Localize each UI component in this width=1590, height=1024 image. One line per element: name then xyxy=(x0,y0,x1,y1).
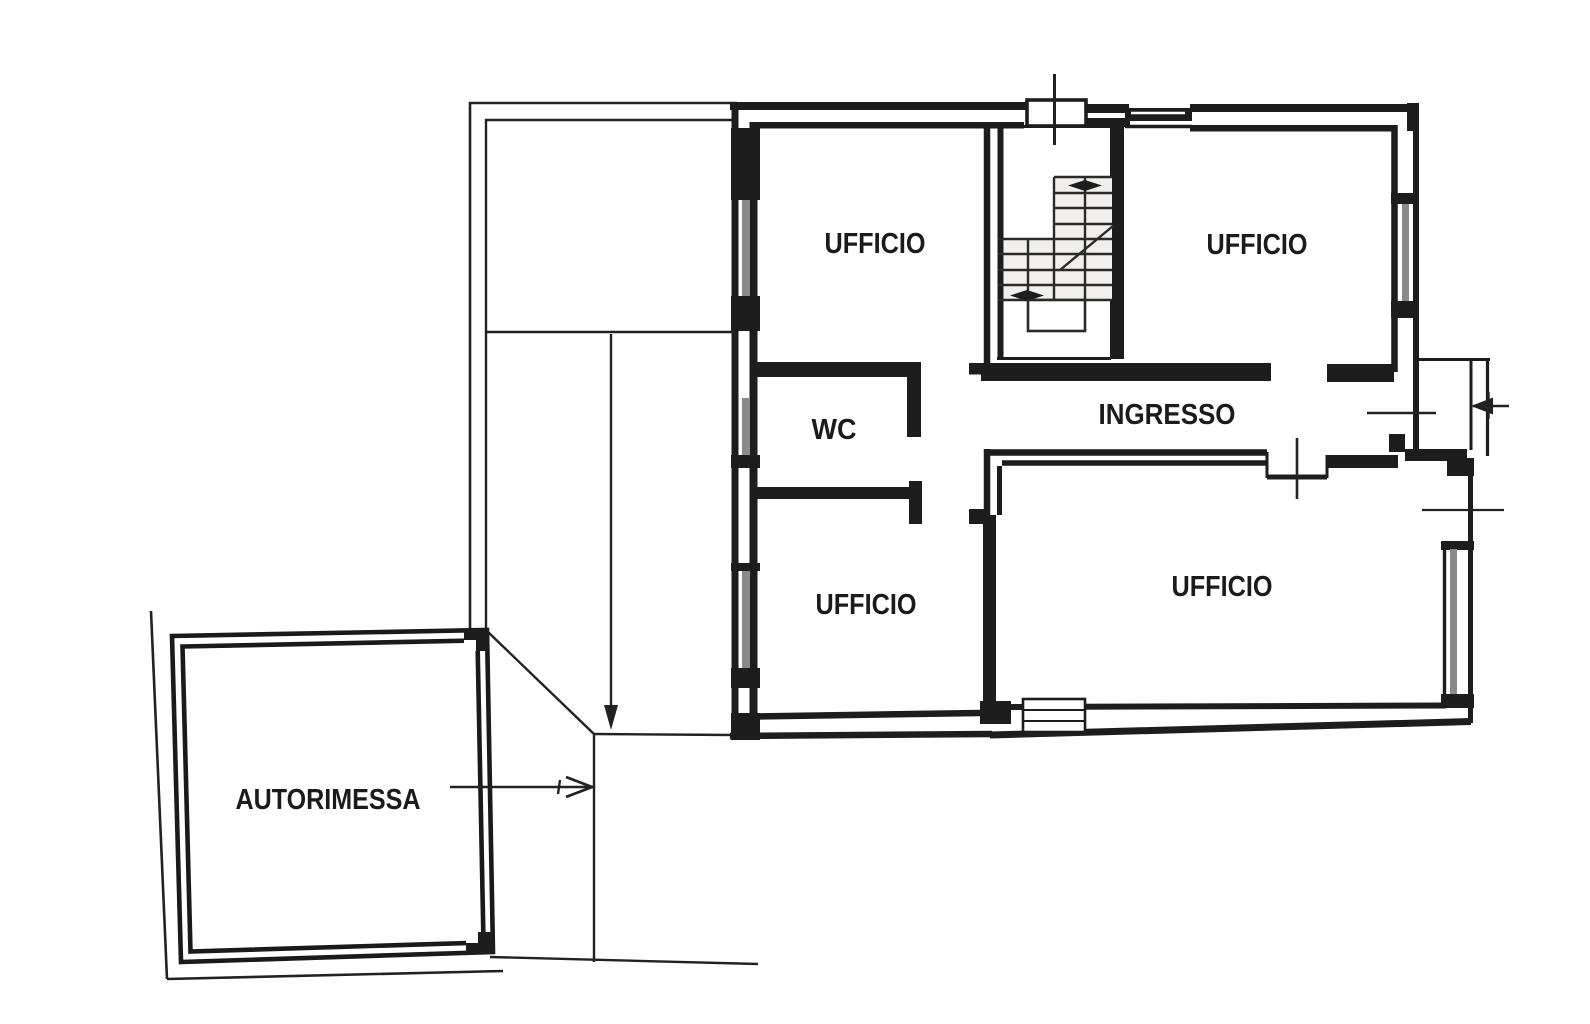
svg-text:WC: WC xyxy=(812,414,857,446)
svg-text:AUTORIMESSA: AUTORIMESSA xyxy=(236,784,421,816)
svg-text:UFFICIO: UFFICIO xyxy=(1207,229,1308,261)
svg-text:UFFICIO: UFFICIO xyxy=(825,228,926,260)
svg-text:INGRESSO: INGRESSO xyxy=(1099,399,1236,431)
svg-text:UFFICIO: UFFICIO xyxy=(816,589,917,621)
svg-text:UFFICIO: UFFICIO xyxy=(1172,571,1273,603)
